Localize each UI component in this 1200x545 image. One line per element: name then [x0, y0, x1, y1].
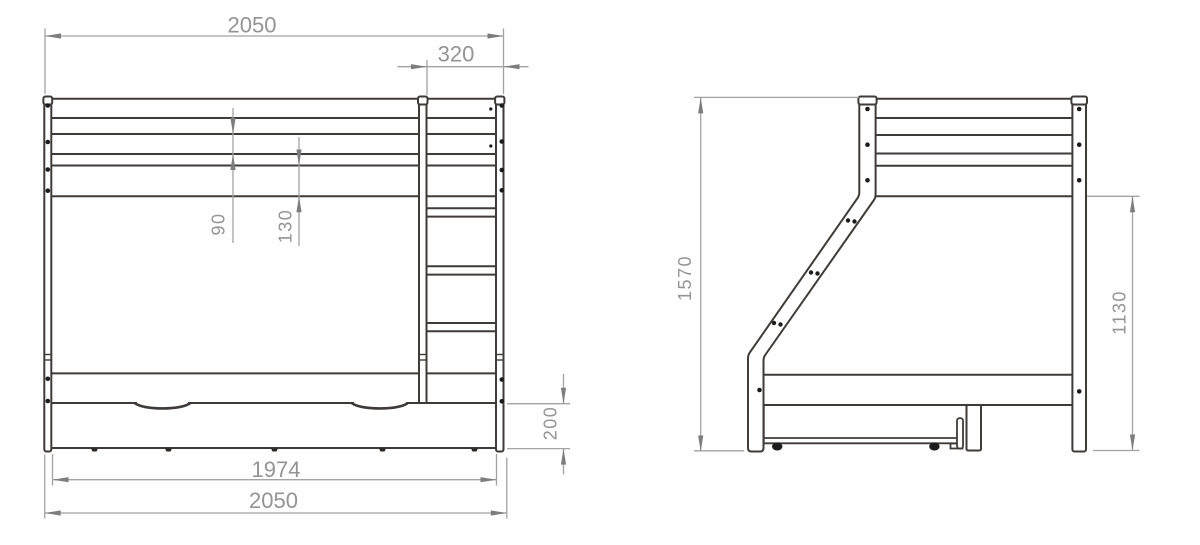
- svg-text:90: 90: [209, 212, 229, 235]
- svg-text:1130: 1130: [1110, 290, 1130, 335]
- svg-text:2050: 2050: [249, 488, 298, 513]
- svg-text:1974: 1974: [252, 457, 301, 482]
- svg-text:1570: 1570: [675, 255, 695, 301]
- svg-text:130: 130: [276, 209, 296, 244]
- svg-text:2050: 2050: [228, 13, 277, 38]
- svg-text:200: 200: [540, 406, 560, 441]
- svg-text:320: 320: [438, 42, 475, 67]
